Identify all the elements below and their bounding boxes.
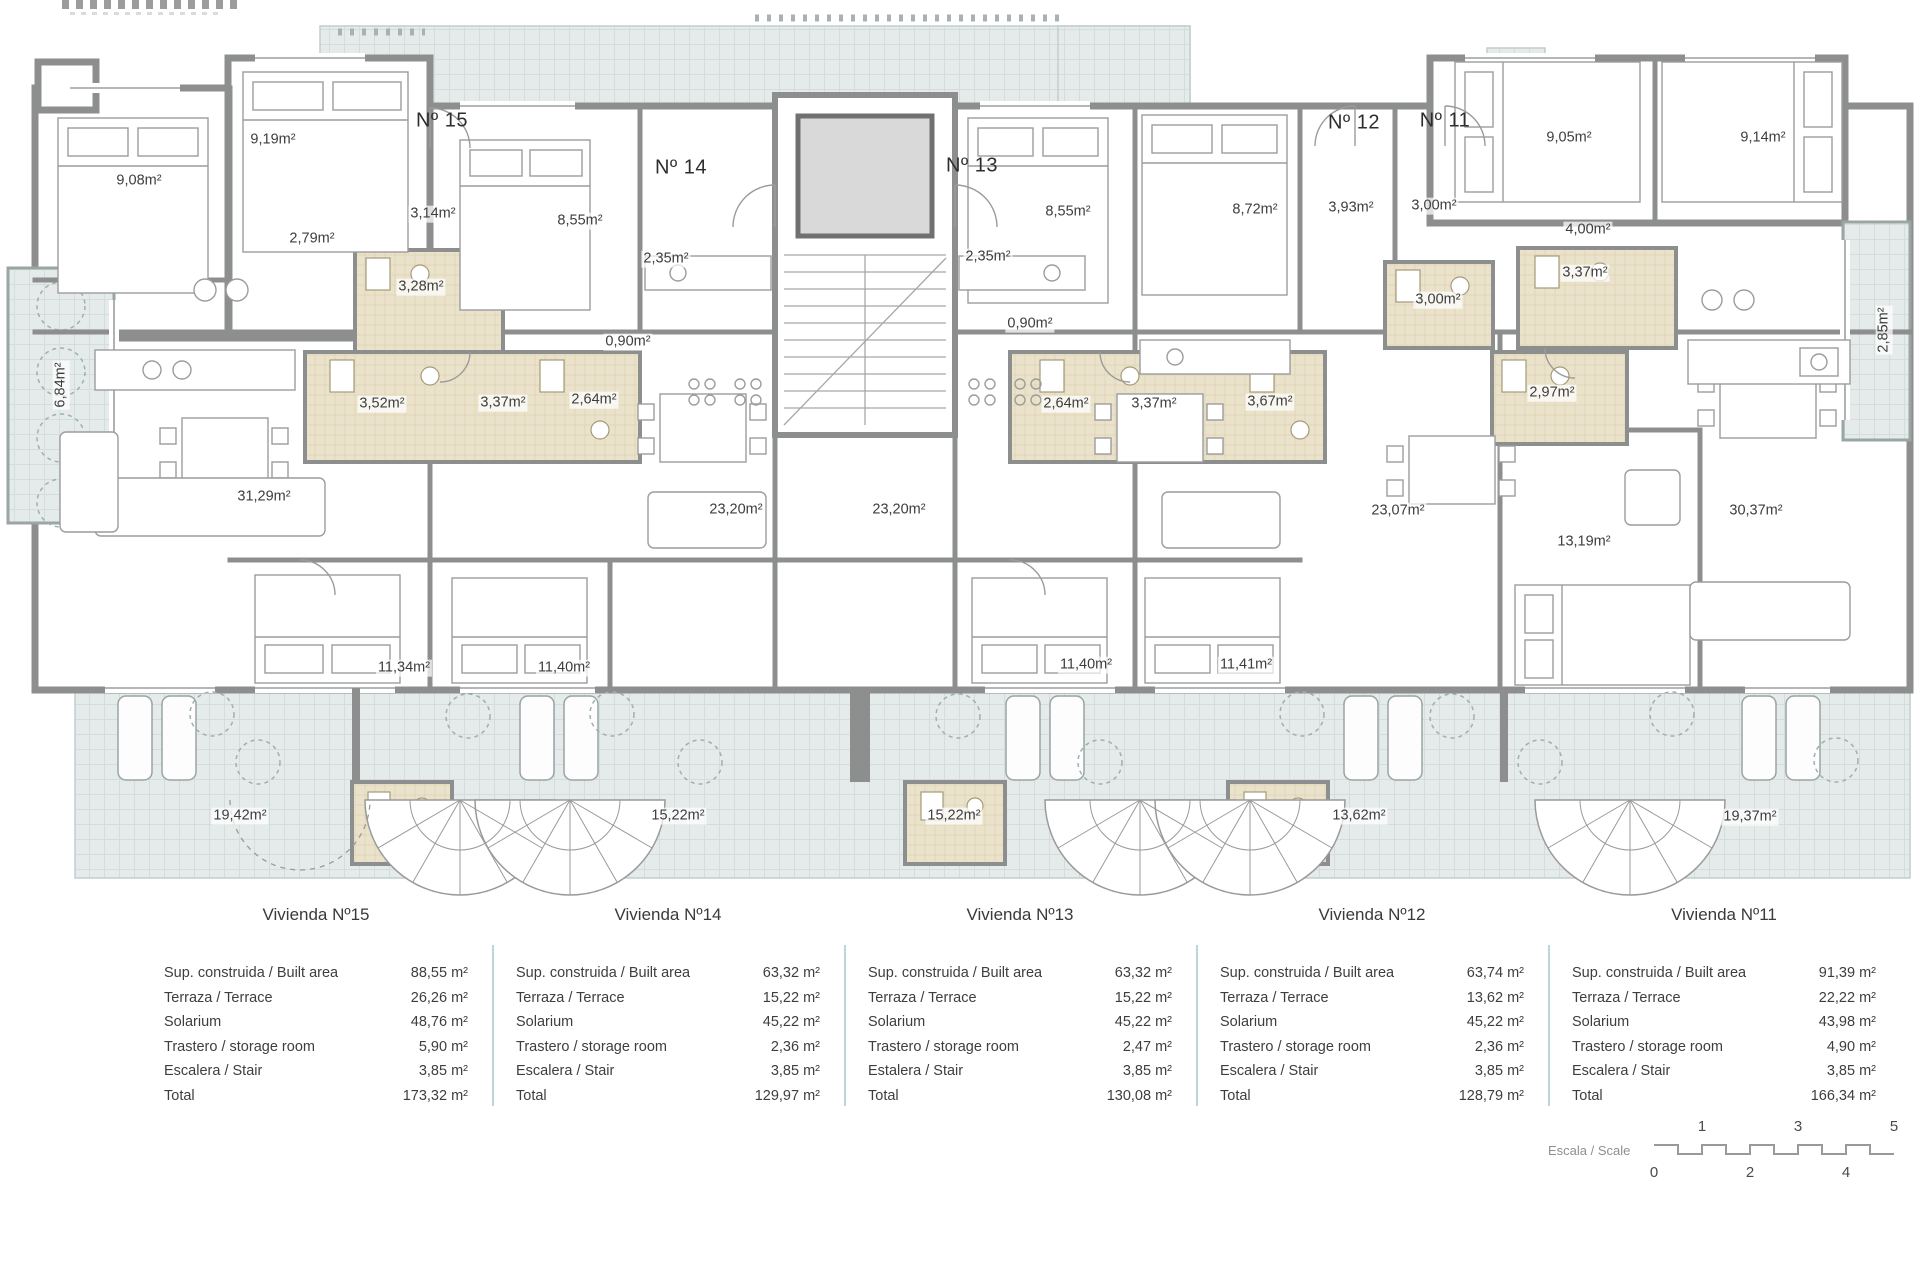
room-area-label: 2,85m²: [1876, 305, 1893, 354]
table-row: Sup. construida / Built area88,55 m²: [164, 961, 468, 986]
row-label: Terraza / Terrace: [1572, 986, 1681, 1011]
row-value: 2,47 m²: [1123, 1035, 1172, 1060]
room-area-label: 23,20m²: [870, 502, 927, 519]
vivienda-table-11: Vivienda Nº11 Sup. construida / Built ar…: [1548, 905, 1900, 1108]
table-title: Vivienda Nº12: [1220, 905, 1524, 925]
row-value: 26,26 m²: [411, 986, 468, 1011]
vivienda-table-14: Vivienda Nº14 Sup. construida / Built ar…: [492, 905, 844, 1108]
room-area-label: 4,00m²: [1563, 222, 1612, 239]
room-area-label: 11,40m²: [1058, 657, 1114, 674]
room-area-label: 2,35m²: [641, 251, 690, 268]
room-area-label: 0,90m²: [1005, 316, 1054, 333]
room-area-label: 3,00m²: [1409, 198, 1458, 215]
area-tables: Vivienda Nº15 Sup. construida / Built ar…: [140, 905, 1900, 1108]
room-area-label: 3,37m²: [478, 395, 527, 412]
room-area-label: 3,00m²: [1413, 292, 1462, 309]
row-value: 2,36 m²: [771, 1035, 820, 1060]
apartment-number-label: Nº 15: [414, 110, 470, 133]
row-label: Terraza / Terrace: [164, 986, 273, 1011]
table-row: Terraza / Terrace26,26 m²: [164, 986, 468, 1011]
apartment-number-label: Nº 14: [653, 157, 709, 180]
table-rows: Sup. construida / Built area63,74 m² Ter…: [1220, 961, 1524, 1108]
apartment-number-label: Nº 13: [944, 155, 1000, 178]
room-area-label: 3,67m²: [1245, 394, 1294, 411]
room-area-label: 2,35m²: [963, 249, 1012, 266]
table-row: Total173,32 m²: [164, 1084, 468, 1109]
table-rows: Sup. construida / Built area63,32 m² Ter…: [516, 961, 820, 1108]
row-value: 2,36 m²: [1475, 1035, 1524, 1060]
room-area-label: 9,08m²: [114, 173, 163, 190]
room-area-label: 11,41m²: [1218, 657, 1274, 674]
row-label: Total: [868, 1084, 899, 1109]
row-value: 63,32 m²: [1115, 961, 1172, 986]
row-label: Solarium: [868, 1010, 925, 1035]
room-area-label: 3,28m²: [396, 279, 445, 296]
scale-number: 4: [1842, 1164, 1850, 1181]
room-area-label: 2,79m²: [287, 231, 336, 248]
table-row: Trastero / storage room2,47 m²: [868, 1035, 1172, 1060]
row-label: Terraza / Terrace: [1220, 986, 1329, 1011]
row-value: 3,85 m²: [1123, 1059, 1172, 1084]
row-label: Total: [516, 1084, 547, 1109]
row-value: 128,79 m²: [1459, 1084, 1524, 1109]
row-label: Trastero / storage room: [164, 1035, 315, 1060]
table-row: Terraza / Terrace15,22 m²: [868, 986, 1172, 1011]
apartment-number-label: Nº 12: [1326, 112, 1382, 135]
table-row: Solarium45,22 m²: [868, 1010, 1172, 1035]
row-value: 91,39 m²: [1819, 961, 1876, 986]
row-value: 3,85 m²: [419, 1059, 468, 1084]
row-label: Trastero / storage room: [516, 1035, 667, 1060]
table-rows: Sup. construida / Built area63,32 m² Ter…: [868, 961, 1172, 1108]
room-area-label: 3,93m²: [1326, 200, 1375, 217]
row-label: Sup. construida / Built area: [868, 961, 1042, 986]
vivienda-table-12: Vivienda Nº12 Sup. construida / Built ar…: [1196, 905, 1548, 1108]
row-label: Solarium: [1572, 1010, 1629, 1035]
room-area-label: 8,55m²: [1043, 204, 1092, 221]
row-label: Sup. construida / Built area: [516, 961, 690, 986]
row-label: Solarium: [1220, 1010, 1277, 1035]
vivienda-table-13: Vivienda Nº13 Sup. construida / Built ar…: [844, 905, 1196, 1108]
room-area-label: 13,19m²: [1555, 534, 1612, 551]
scale-number: 1: [1698, 1118, 1706, 1135]
room-area-label: 23,20m²: [707, 502, 764, 519]
row-value: 130,08 m²: [1107, 1084, 1172, 1109]
row-value: 13,62 m²: [1467, 986, 1524, 1011]
row-label: Total: [164, 1084, 195, 1109]
row-label: Terraza / Terrace: [868, 986, 977, 1011]
scale-bar: Escala / Scale 1 3 5 0 2 4: [1530, 1116, 1920, 1194]
table-row: Sup. construida / Built area63,32 m²: [868, 961, 1172, 986]
row-value: 3,85 m²: [1475, 1059, 1524, 1084]
room-area-label: 2,64m²: [1041, 396, 1090, 413]
scale-label: Escala / Scale: [1548, 1143, 1630, 1158]
scale-number: 2: [1746, 1164, 1754, 1181]
table-title: Vivienda Nº11: [1572, 905, 1876, 925]
row-value: 173,32 m²: [403, 1084, 468, 1109]
row-label: Sup. construida / Built area: [164, 961, 338, 986]
page: Nº 15Nº 14Nº 13Nº 12Nº 119,08m²9,19m²2,7…: [0, 0, 1920, 1280]
row-label: Total: [1572, 1084, 1603, 1109]
floor-plan: Nº 15Nº 14Nº 13Nº 12Nº 119,08m²9,19m²2,7…: [0, 0, 1920, 910]
row-label: Escalera / Stair: [1220, 1059, 1318, 1084]
room-area-label: 3,37m²: [1129, 396, 1178, 413]
row-value: 88,55 m²: [411, 961, 468, 986]
room-area-label: 6,84m²: [53, 360, 70, 409]
scale-number: 3: [1794, 1118, 1802, 1135]
room-area-label: 3,37m²: [1560, 265, 1609, 282]
table-row: Total129,97 m²: [516, 1084, 820, 1109]
row-value: 166,34 m²: [1811, 1084, 1876, 1109]
table-row: Solarium48,76 m²: [164, 1010, 468, 1035]
row-label: Escalera / Stair: [1572, 1059, 1670, 1084]
table-row: Sup. construida / Built area63,32 m²: [516, 961, 820, 986]
room-area-label: 15,22m²: [649, 808, 706, 825]
room-area-label: 11,40m²: [536, 660, 592, 677]
table-row: Escalera / Stair3,85 m²: [1572, 1059, 1876, 1084]
vivienda-table-15: Vivienda Nº15 Sup. construida / Built ar…: [140, 905, 492, 1108]
table-row: Terraza / Terrace13,62 m²: [1220, 986, 1524, 1011]
room-area-label: 11,34m²: [376, 660, 432, 677]
table-row: Escalera / Stair3,85 m²: [516, 1059, 820, 1084]
table-rows: Sup. construida / Built area88,55 m² Ter…: [164, 961, 468, 1108]
table-row: Solarium45,22 m²: [516, 1010, 820, 1035]
row-label: Terraza / Terrace: [516, 986, 625, 1011]
table-row: Terraza / Terrace15,22 m²: [516, 986, 820, 1011]
row-value: 15,22 m²: [1115, 986, 1172, 1011]
table-row: Estalera / Stair3,85 m²: [868, 1059, 1172, 1084]
row-label: Trastero / storage room: [1220, 1035, 1371, 1060]
room-area-label: 9,19m²: [248, 132, 297, 149]
row-value: 43,98 m²: [1819, 1010, 1876, 1035]
table-row: Escalera / Stair3,85 m²: [1220, 1059, 1524, 1084]
row-value: 129,97 m²: [755, 1084, 820, 1109]
room-area-label: 9,14m²: [1738, 130, 1787, 147]
room-area-label: 13,62m²: [1330, 808, 1387, 825]
table-row: Trastero / storage room4,90 m²: [1572, 1035, 1876, 1060]
room-area-label: 31,29m²: [235, 489, 292, 506]
room-area-label: 15,22m²: [925, 808, 982, 825]
row-value: 45,22 m²: [1115, 1010, 1172, 1035]
table-row: Total128,79 m²: [1220, 1084, 1524, 1109]
table-row: Total166,34 m²: [1572, 1084, 1876, 1109]
row-value: 15,22 m²: [763, 986, 820, 1011]
scale-number: 5: [1890, 1118, 1898, 1135]
table-row: Total130,08 m²: [868, 1084, 1172, 1109]
plan-room-labels: Nº 15Nº 14Nº 13Nº 12Nº 119,08m²9,19m²2,7…: [0, 0, 1920, 910]
row-value: 63,74 m²: [1467, 961, 1524, 986]
row-value: 63,32 m²: [763, 961, 820, 986]
row-label: Escalera / Stair: [516, 1059, 614, 1084]
scale-number: 0: [1650, 1164, 1658, 1181]
table-row: Sup. construida / Built area91,39 m²: [1572, 961, 1876, 986]
row-value: 22,22 m²: [1819, 986, 1876, 1011]
table-rows: Sup. construida / Built area91,39 m² Ter…: [1572, 961, 1876, 1108]
room-area-label: 19,37m²: [1721, 809, 1778, 826]
table-row: Sup. construida / Built area63,74 m²: [1220, 961, 1524, 986]
scale-bar-graphic: [1648, 1142, 1910, 1158]
table-title: Vivienda Nº15: [164, 905, 468, 925]
table-row: Solarium45,22 m²: [1220, 1010, 1524, 1035]
table-row: Terraza / Terrace22,22 m²: [1572, 986, 1876, 1011]
row-label: Total: [1220, 1084, 1251, 1109]
row-label: Trastero / storage room: [1572, 1035, 1723, 1060]
row-label: Trastero / storage room: [868, 1035, 1019, 1060]
room-area-label: 19,42m²: [211, 808, 268, 825]
table-row: Solarium43,98 m²: [1572, 1010, 1876, 1035]
table-row: Trastero / storage room2,36 m²: [1220, 1035, 1524, 1060]
room-area-label: 3,52m²: [357, 396, 406, 413]
room-area-label: 23,07m²: [1369, 503, 1426, 520]
row-label: Solarium: [164, 1010, 221, 1035]
row-value: 45,22 m²: [763, 1010, 820, 1035]
row-value: 5,90 m²: [419, 1035, 468, 1060]
table-row: Trastero / storage room2,36 m²: [516, 1035, 820, 1060]
row-label: Sup. construida / Built area: [1572, 961, 1746, 986]
table-title: Vivienda Nº13: [868, 905, 1172, 925]
apartment-number-label: Nº 11: [1418, 110, 1473, 133]
room-area-label: 9,05m²: [1544, 130, 1593, 147]
row-label: Estalera / Stair: [868, 1059, 963, 1084]
row-label: Solarium: [516, 1010, 573, 1035]
room-area-label: 3,14m²: [408, 206, 457, 223]
room-area-label: 8,55m²: [555, 213, 604, 230]
room-area-label: 30,37m²: [1727, 503, 1784, 520]
row-value: 4,90 m²: [1827, 1035, 1876, 1060]
row-label: Escalera / Stair: [164, 1059, 262, 1084]
room-area-label: 2,97m²: [1527, 385, 1576, 402]
row-label: Sup. construida / Built area: [1220, 961, 1394, 986]
row-value: 3,85 m²: [1827, 1059, 1876, 1084]
room-area-label: 8,72m²: [1230, 202, 1279, 219]
row-value: 45,22 m²: [1467, 1010, 1524, 1035]
room-area-label: 0,90m²: [603, 334, 652, 351]
table-row: Escalera / Stair3,85 m²: [164, 1059, 468, 1084]
row-value: 48,76 m²: [411, 1010, 468, 1035]
room-area-label: 2,64m²: [569, 392, 618, 409]
table-title: Vivienda Nº14: [516, 905, 820, 925]
table-row: Trastero / storage room5,90 m²: [164, 1035, 468, 1060]
row-value: 3,85 m²: [771, 1059, 820, 1084]
